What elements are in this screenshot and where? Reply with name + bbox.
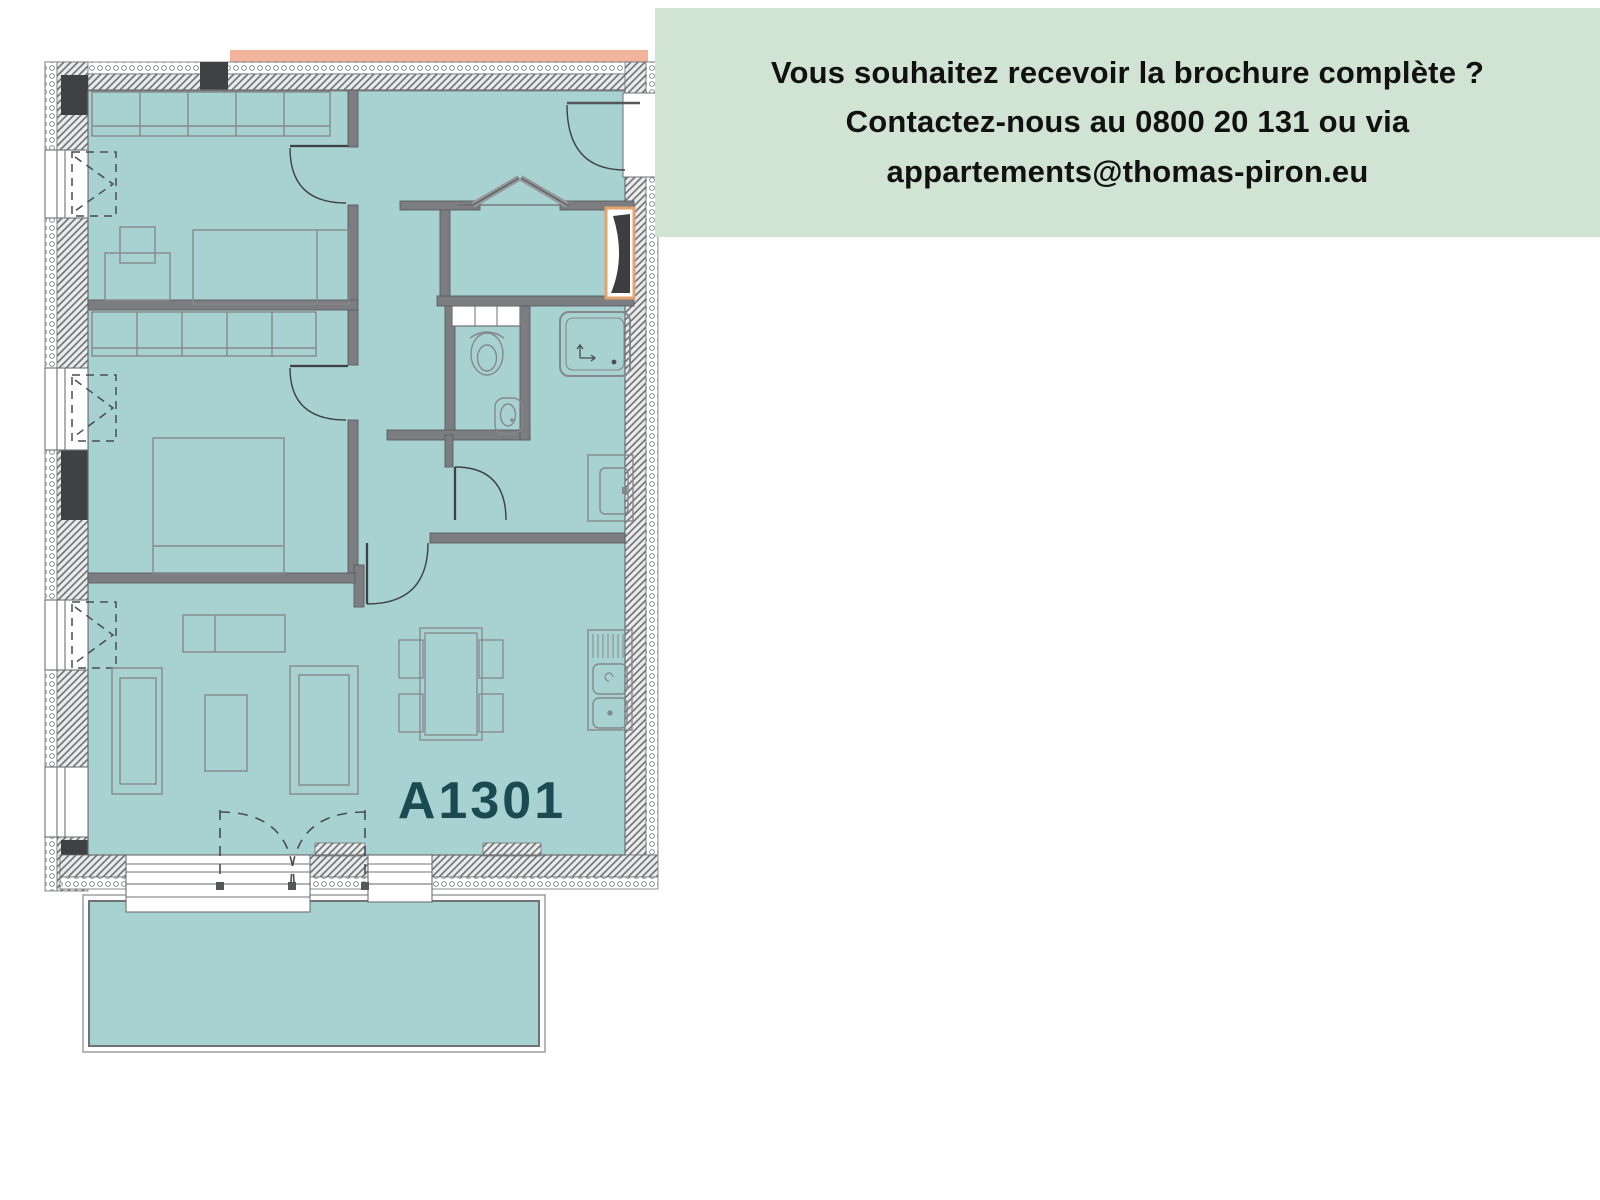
info-line-2: Contactez-nous au 0800 20 131 ou via bbox=[846, 106, 1410, 139]
info-line-1: Vous souhaitez recevoir la brochure comp… bbox=[771, 57, 1484, 90]
window bbox=[45, 767, 88, 837]
window bbox=[45, 600, 88, 670]
technical-shaft bbox=[606, 208, 634, 298]
window bbox=[45, 150, 88, 218]
balcony bbox=[83, 895, 545, 1052]
window bbox=[45, 368, 88, 450]
info-line-3: appartements@thomas-piron.eu bbox=[887, 156, 1369, 189]
window bbox=[368, 855, 432, 902]
brochure-info-box: Vous souhaitez recevoir la brochure comp… bbox=[655, 8, 1600, 237]
page: A1301 Vous souhaitez recevoir la brochur… bbox=[0, 0, 1600, 1200]
facade-accent-strip bbox=[230, 50, 648, 63]
unit-label: A1301 bbox=[398, 772, 566, 830]
dish-drainer bbox=[593, 634, 623, 658]
wc-shelf bbox=[452, 306, 520, 326]
